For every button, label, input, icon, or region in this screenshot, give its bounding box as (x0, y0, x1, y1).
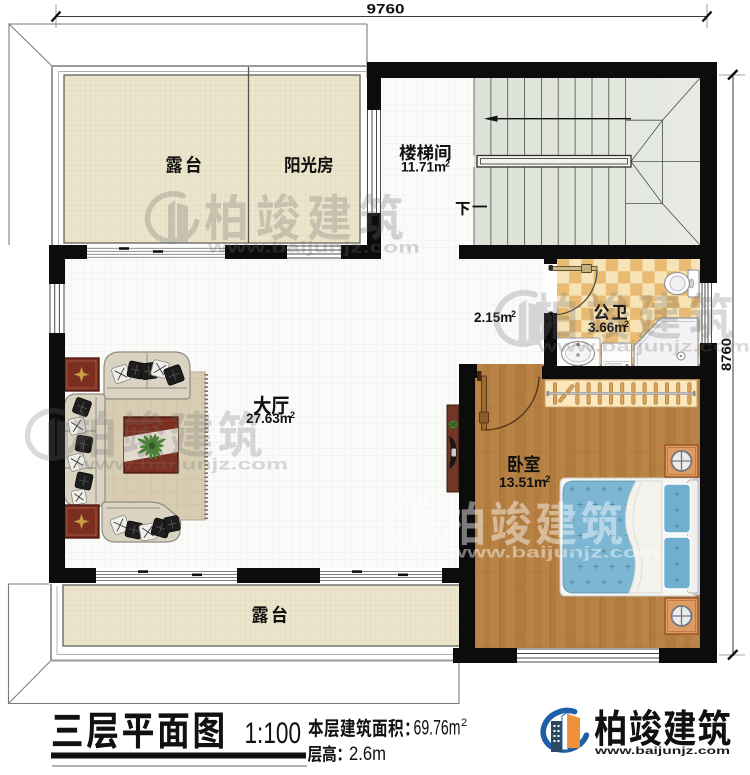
svg-text:2.15m: 2.15m (474, 310, 512, 325)
svg-text:13.51m: 13.51m (499, 474, 546, 490)
svg-text:www.baijunjz.com: www.baijunjz.com (594, 745, 730, 757)
svg-text:9760: 9760 (367, 1, 405, 17)
svg-text:www.baijunjz.com: www.baijunjz.com (536, 339, 750, 356)
svg-text:2: 2 (545, 474, 550, 485)
svg-text:2: 2 (461, 717, 467, 729)
svg-text:69.76m: 69.76m (414, 717, 461, 740)
svg-text:www.baijunjz.com: www.baijunjz.com (74, 457, 288, 474)
svg-text:2.6m: 2.6m (349, 743, 386, 765)
svg-text:2: 2 (290, 410, 295, 420)
svg-text:11.71m: 11.71m (401, 160, 446, 175)
svg-text:2: 2 (445, 159, 450, 169)
svg-text:www.baijunjz.com: www.baijunjz.com (446, 545, 660, 562)
svg-text:1:100: 1:100 (245, 717, 302, 750)
svg-text:www.baijunjz.com: www.baijunjz.com (206, 240, 420, 257)
svg-text:2: 2 (511, 309, 516, 319)
